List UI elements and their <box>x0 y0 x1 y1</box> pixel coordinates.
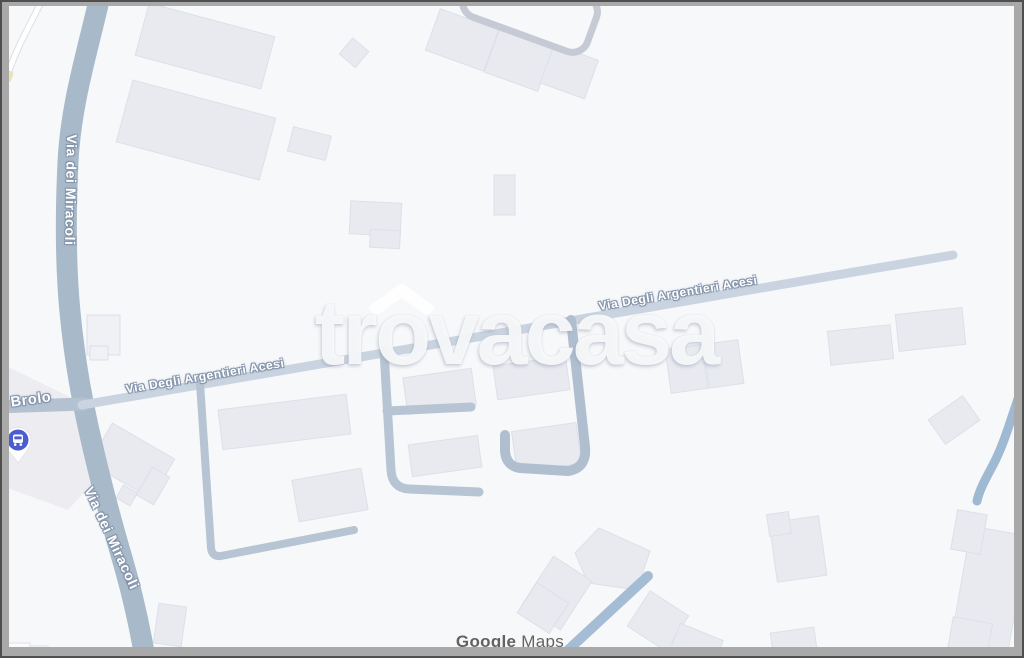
house-roof-icon <box>366 284 438 314</box>
trovacasa-watermark: trovacasa <box>315 287 718 379</box>
map-viewport: Via dei Miracoli Brolo Via Degli Argenti… <box>9 6 1014 647</box>
map-canvas[interactable]: Via dei Miracoli Brolo Via Degli Argenti… <box>9 6 1014 647</box>
google-logo-text: Google <box>456 632 516 647</box>
watermark-roof-letter: o <box>375 287 428 379</box>
google-maps-attribution[interactable]: GoogleMaps <box>456 632 564 647</box>
watermark-text-suffix: vacasa <box>428 282 717 384</box>
road-label-via-dei-miracoli-top: Via dei Miracoli <box>62 134 80 246</box>
screenshot-frame: Via dei Miracoli Brolo Via Degli Argenti… <box>0 0 1024 658</box>
poi-dot <box>9 70 13 82</box>
maps-text: Maps <box>521 632 564 647</box>
